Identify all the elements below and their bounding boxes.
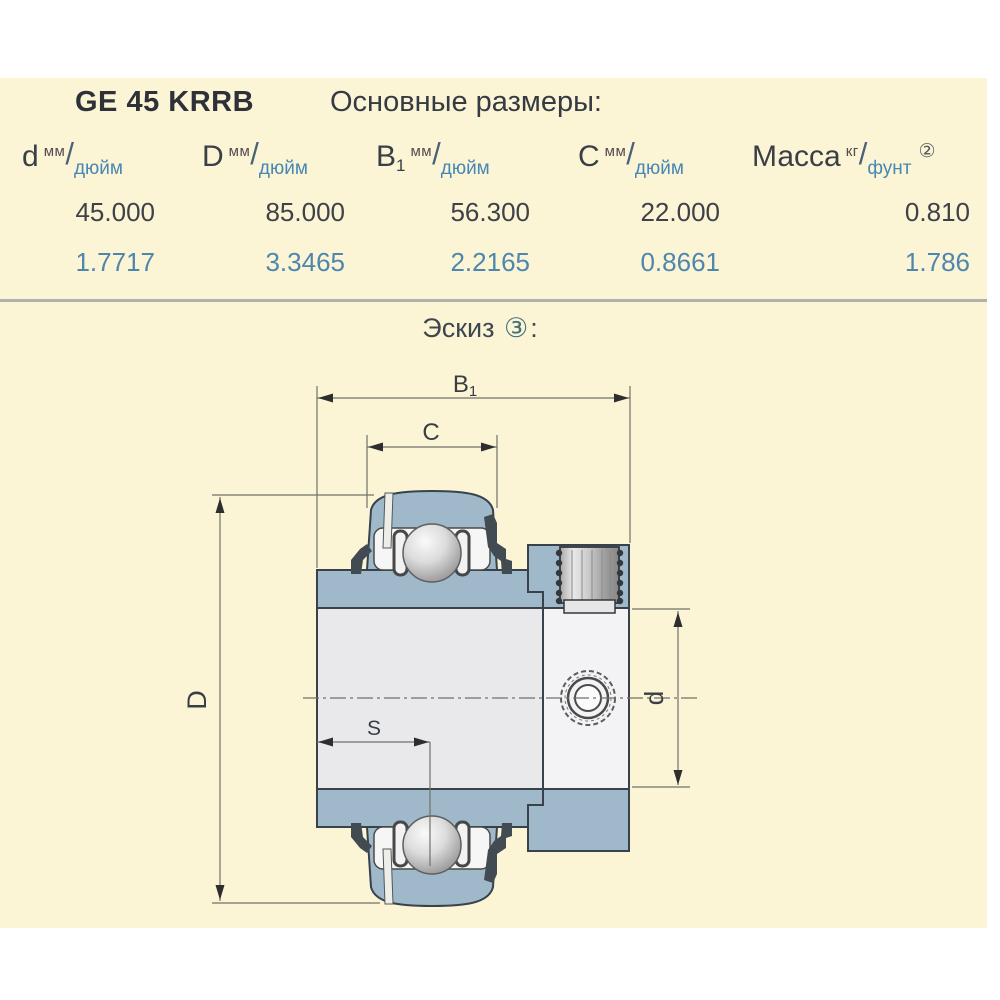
label-b1: B1 [453,371,477,400]
label-s: S [367,717,381,740]
unit-slash: / [432,136,441,171]
value-d-inch: 1.7717 [5,247,155,278]
col-header-C: Cмм/дюйм [578,138,684,174]
label-b1-main: B [453,371,469,398]
section-title: Основные размеры: [330,86,602,119]
arrow-D-bottom [216,885,225,900]
slit-top [383,493,393,548]
col-symbol-sub: 1 [396,156,405,175]
arrow-b1-right [614,394,629,403]
value-D-mm: 85.000 [195,197,345,228]
value-mass-lb: 1.786 [820,247,970,278]
ball-top [403,524,461,582]
label-c: C [422,419,439,446]
arrow-D-top [216,498,225,513]
unit-kg: кг [846,143,859,160]
arrow-c-right [481,443,496,452]
unit-lb: фунт [867,158,911,179]
unit-inch: дюйм [259,158,308,179]
value-C-mm: 22.000 [570,197,720,228]
col-symbol: B [376,140,396,173]
ball-bottom [403,816,461,874]
note-2-badge: ② [919,141,936,162]
unit-inch: дюйм [441,158,490,179]
value-d-mm: 45.000 [5,197,155,228]
col-symbol: C [578,140,600,173]
col-header-B1: B1мм/дюйм [376,138,490,174]
value-B1-mm: 56.300 [380,197,530,228]
unit-inch: дюйм [635,158,684,179]
value-mass-kg: 0.810 [820,197,970,228]
col-symbol: D [202,140,224,173]
slit-bottom [383,849,393,904]
arrow-d-top [674,612,683,627]
unit-mm: мм [605,143,627,160]
col-header-mass: Массакг/фунт② [752,138,936,174]
arrow-d-bottom [674,770,683,785]
bearing-cross-section-drawing: B1 C D d S [0,300,987,928]
label-b1-sub: 1 [469,383,477,400]
col-header-D: Dмм/дюйм [202,138,308,174]
unit-slash: / [626,136,635,171]
col-symbol: d [22,140,39,173]
unit-slash: / [65,136,74,171]
arrow-c-left [368,443,383,452]
set-screw-tip [564,600,615,613]
value-B1-inch: 2.2165 [380,247,530,278]
col-header-d: dмм/дюйм [22,138,123,174]
unit-mm: мм [44,143,66,160]
model-designation: GE 45 KRRB [75,86,254,119]
unit-mm: мм [229,143,251,160]
value-D-inch: 3.3465 [195,247,345,278]
unit-mm: мм [410,143,432,160]
value-C-inch: 0.8661 [570,247,720,278]
locking-collar-bottom [528,789,629,851]
set-screw [556,547,623,613]
col-symbol: Масса [752,140,841,173]
label-d: d [639,691,669,705]
arrow-b1-left [318,394,333,403]
unit-slash: / [250,136,259,171]
unit-inch: дюйм [74,158,123,179]
label-D: D [182,690,212,710]
